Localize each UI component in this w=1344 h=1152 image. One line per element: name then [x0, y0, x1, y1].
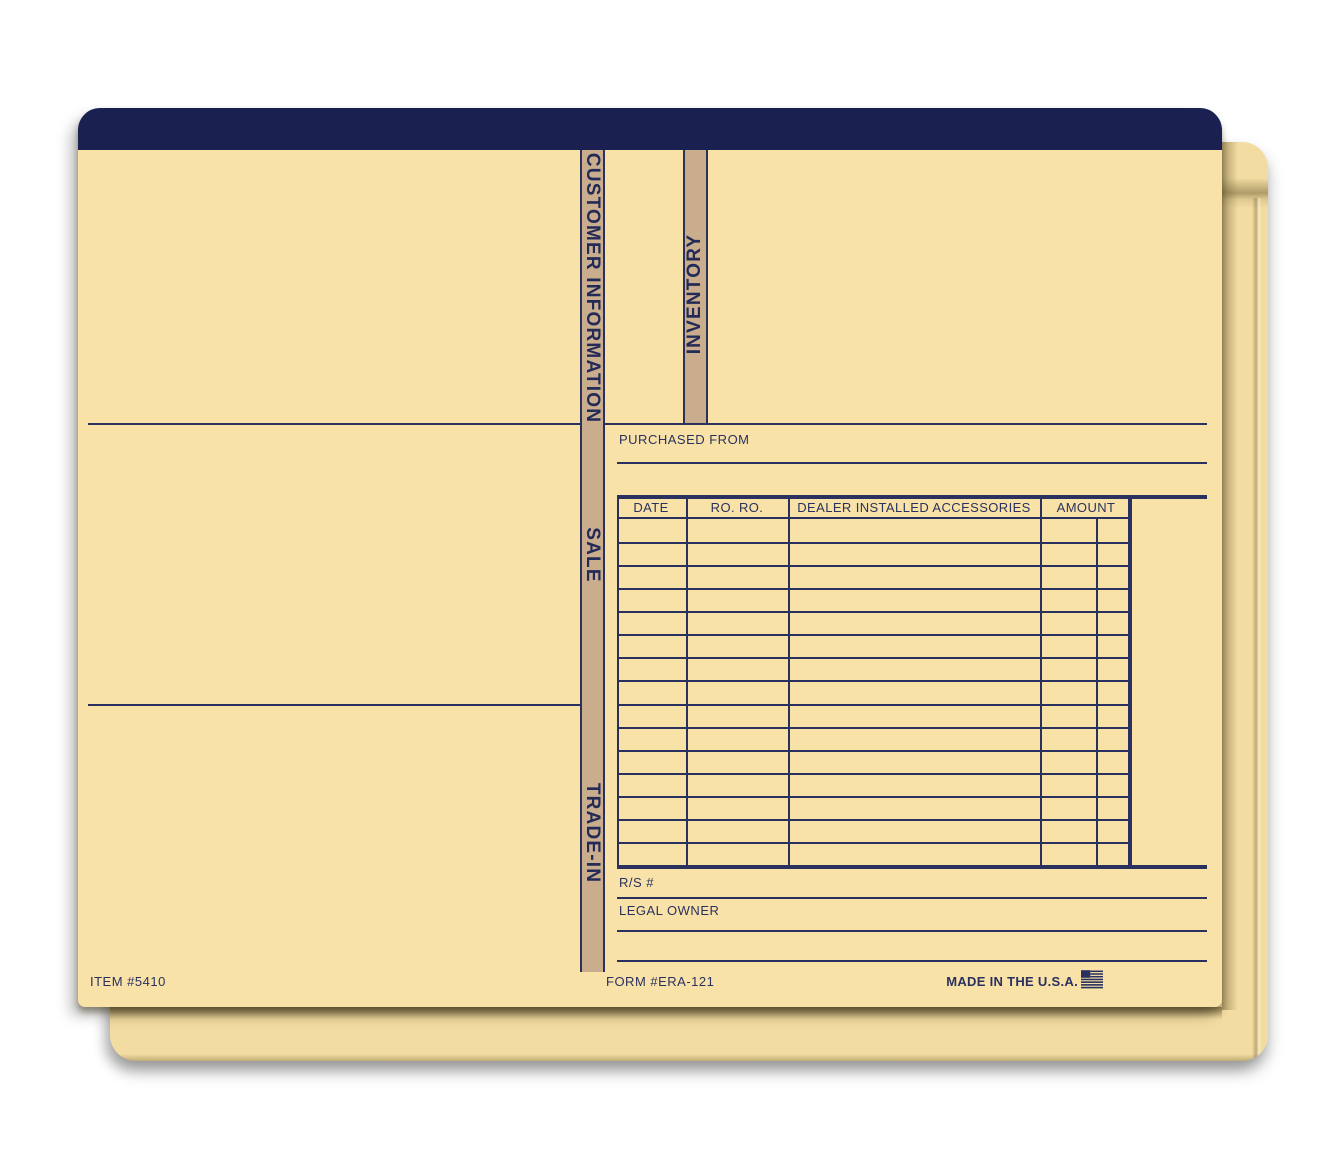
back-sheet-bottom-edge: [110, 1054, 1268, 1061]
tab-trade-in: TRADE-IN: [581, 783, 603, 883]
col-header-amount: AMOUNT: [1057, 500, 1116, 515]
legal-owner-label: LEGAL OWNER: [619, 903, 719, 918]
amount-cents-divider: [1096, 519, 1098, 865]
tab-inventory: INVENTORY: [684, 234, 706, 355]
us-flag-icon: [1081, 970, 1103, 989]
tab-sale: SALE: [581, 527, 603, 582]
table-row-line: [617, 680, 1132, 682]
front-edge-shadow: [110, 1007, 1222, 1021]
table-row-line: [617, 657, 1132, 659]
col-header-accessories: DEALER INSTALLED ACCESSORIES: [797, 500, 1030, 515]
customer-section-divider-line: [88, 423, 580, 425]
rs-number-label: R/S #: [619, 875, 654, 890]
col-divider-ro-accessories: [788, 499, 790, 865]
table-row-line: [617, 704, 1132, 706]
product-photo: { "folder": { "navy": "#1a2050", "cream"…: [0, 0, 1344, 1152]
table-top-border: [617, 495, 1207, 499]
navy-header-band: [78, 108, 1222, 150]
table-row-line: [617, 611, 1132, 613]
form-number: FORM #ERA-121: [606, 974, 714, 989]
made-in-usa-label: MADE IN THE U.S.A.: [858, 974, 1078, 989]
col-header-ro: RO. RO.: [711, 500, 764, 515]
table-row-line: [617, 565, 1132, 567]
table-row-line: [617, 727, 1132, 729]
col-divider-date-ro: [686, 499, 688, 865]
item-number: ITEM #5410: [90, 974, 166, 989]
legal-owner-fill-line-2: [617, 960, 1207, 962]
table-row-line: [617, 588, 1132, 590]
table-right-border: [1128, 495, 1132, 869]
inventory-section-divider-line: [605, 423, 1207, 425]
table-row-line: [617, 842, 1132, 844]
table-row-line: [617, 796, 1132, 798]
table-row-line: [617, 542, 1132, 544]
purchased-from-label: PURCHASED FROM: [619, 432, 750, 447]
col-header-date: DATE: [633, 500, 668, 515]
table-row-line: [617, 819, 1132, 821]
table-row-line: [617, 750, 1132, 752]
col-divider-accessories-amount: [1040, 499, 1042, 865]
folder-front-panel: CUSTOMER INFORMATION SALE TRADE-IN INVEN…: [78, 108, 1222, 1007]
table-left-border: [617, 495, 619, 869]
table-row-line: [617, 773, 1132, 775]
purchased-from-fill-line: [617, 462, 1207, 464]
legal-owner-fill-line-1: [617, 930, 1207, 932]
rs-fill-line: [617, 897, 1207, 899]
fold-crease-vertical: [1252, 198, 1261, 1058]
sale-section-divider-line: [88, 704, 580, 706]
table-row-line: [617, 634, 1132, 636]
table-bottom-border: [617, 865, 1207, 869]
table-header-bottom-line: [617, 517, 1132, 519]
tab-customer-information: CUSTOMER INFORMATION: [581, 153, 603, 423]
front-right-edge-shadow: [1222, 142, 1238, 1010]
